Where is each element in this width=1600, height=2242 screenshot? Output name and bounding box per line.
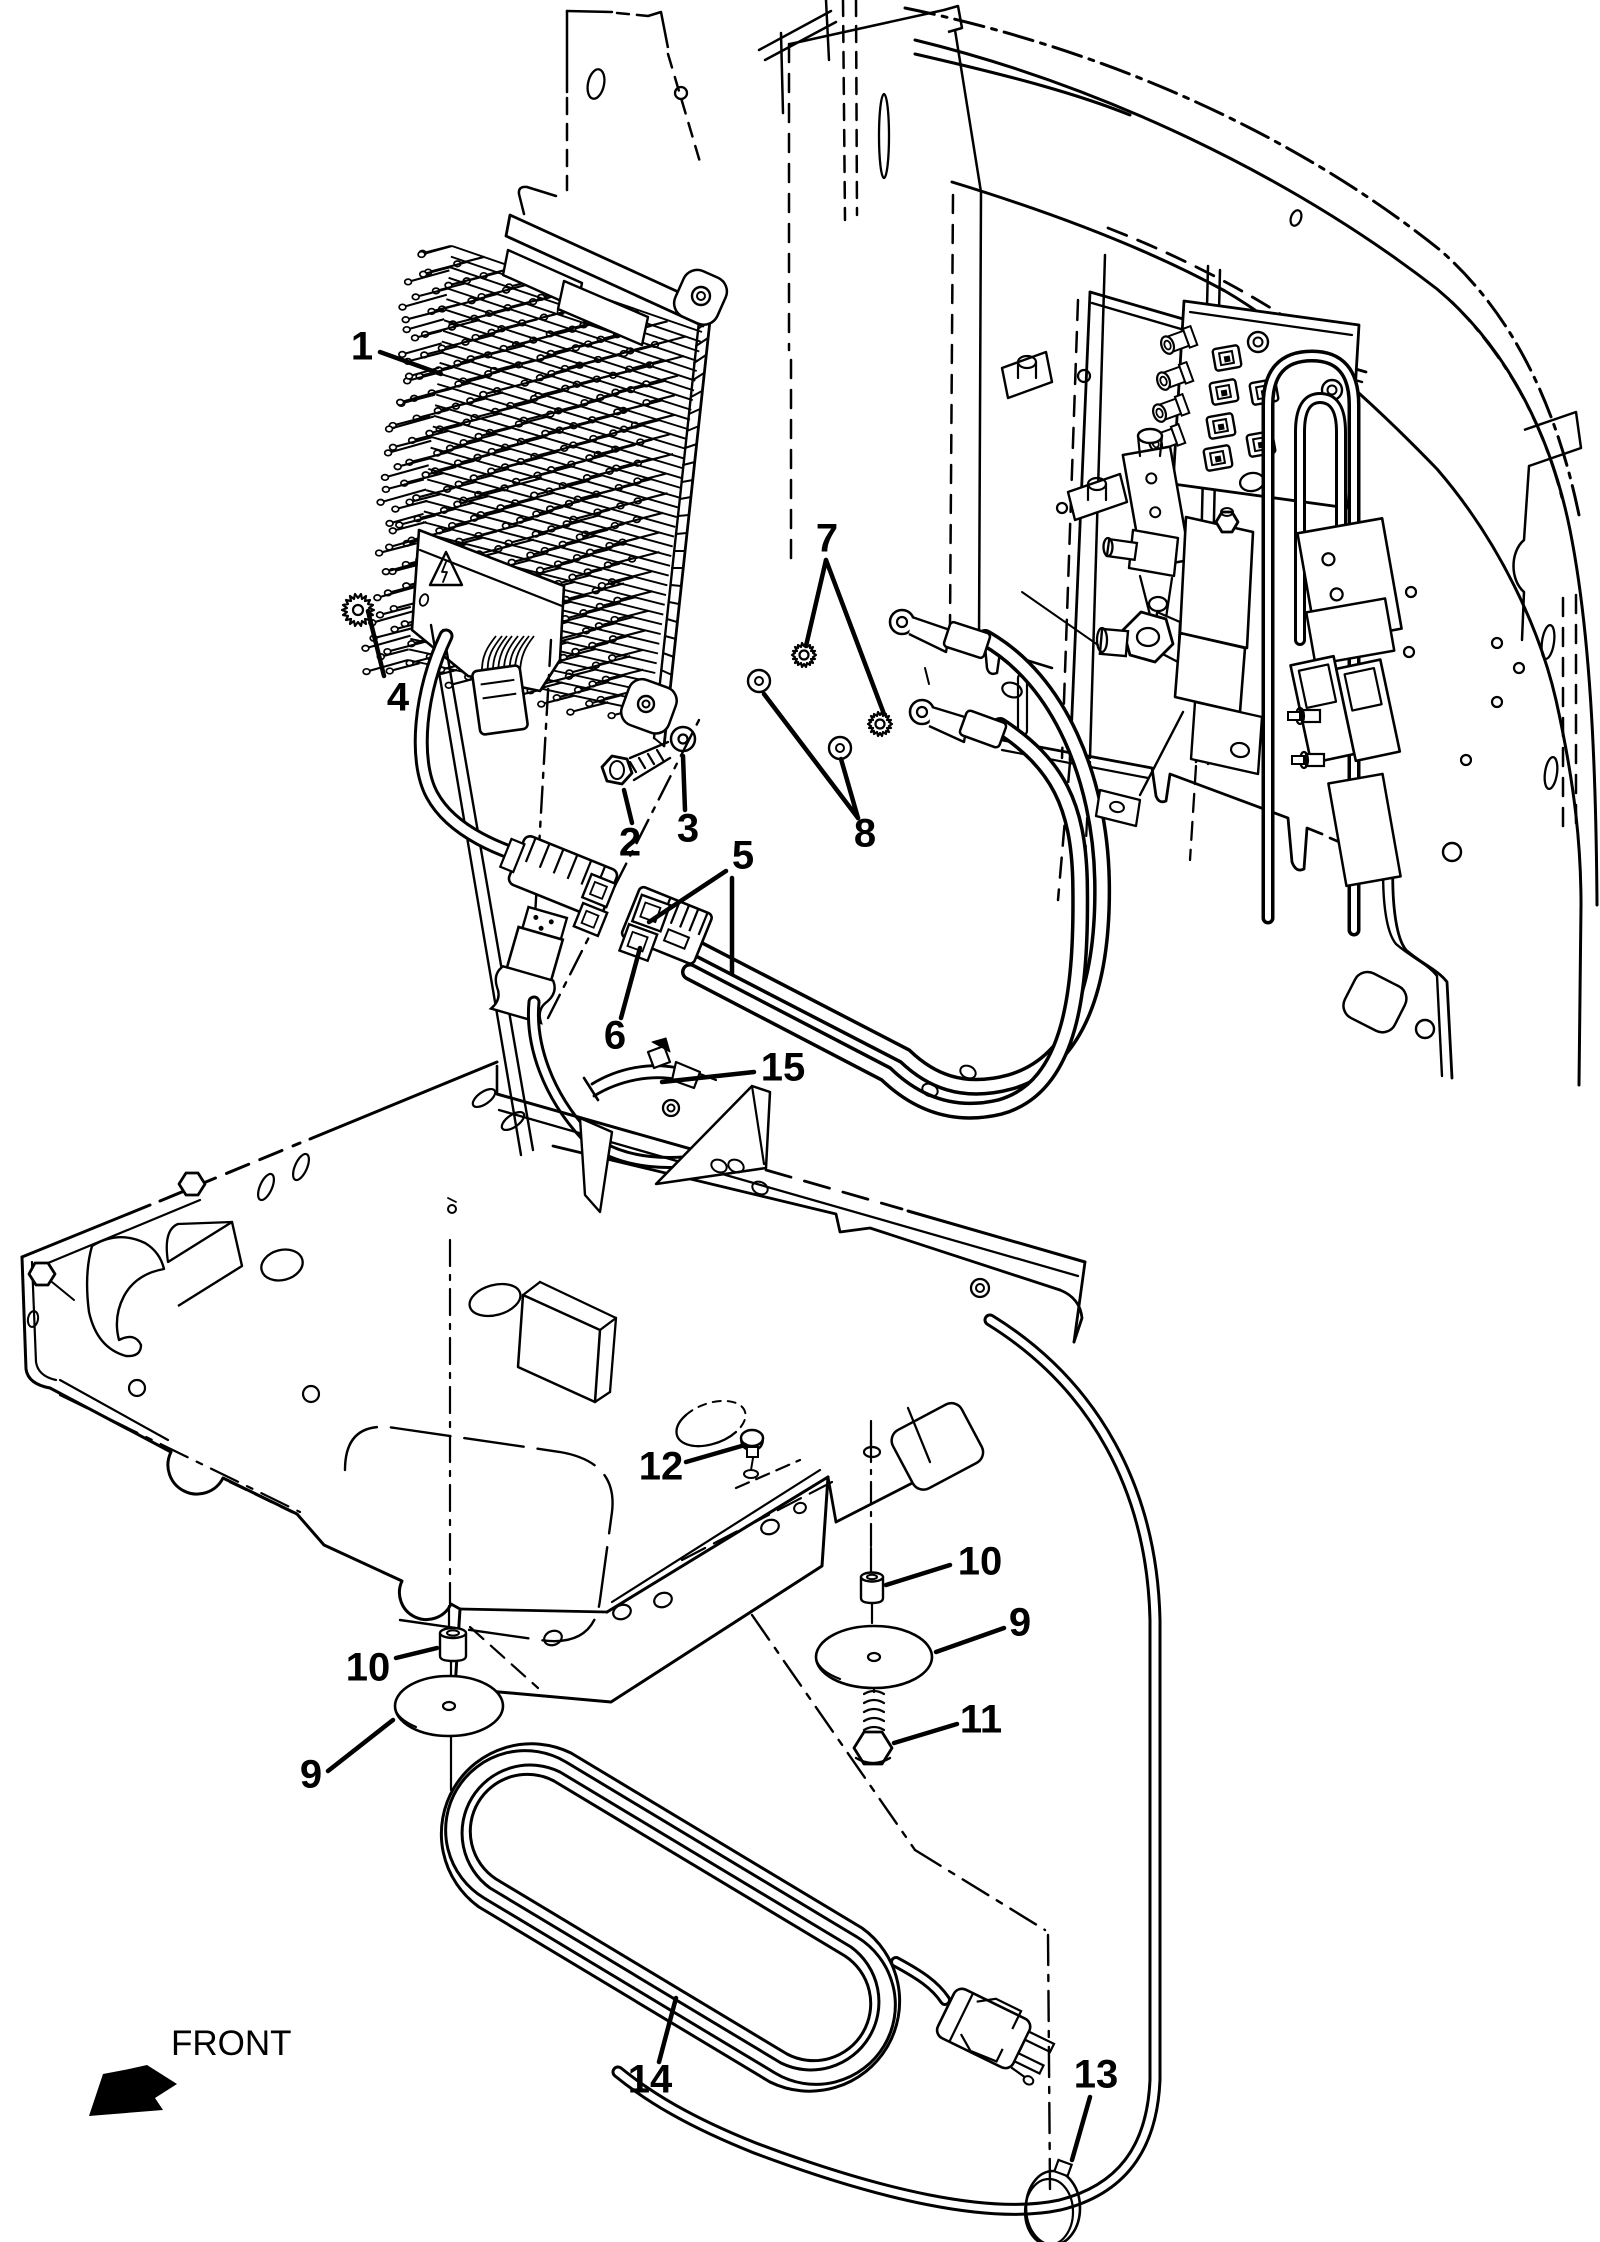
svg-text:4: 4 <box>387 676 410 720</box>
svg-text:2: 2 <box>619 821 641 865</box>
svg-text:6: 6 <box>604 1014 626 1058</box>
svg-text:11: 11 <box>960 1698 1002 1742</box>
svg-text:13: 13 <box>1074 2053 1119 2097</box>
svg-text:5: 5 <box>732 834 754 878</box>
svg-text:10: 10 <box>958 1540 1003 1584</box>
svg-text:12: 12 <box>639 1445 684 1489</box>
svg-text:15: 15 <box>761 1046 806 1090</box>
svg-text:7: 7 <box>816 517 838 561</box>
svg-text:1: 1 <box>351 325 373 369</box>
svg-text:9: 9 <box>300 1753 322 1797</box>
svg-text:14: 14 <box>628 2058 673 2102</box>
svg-text:9: 9 <box>1009 1601 1031 1645</box>
svg-text:FRONT: FRONT <box>171 2024 292 2063</box>
svg-text:3: 3 <box>677 807 699 851</box>
svg-text:10: 10 <box>346 1646 391 1690</box>
